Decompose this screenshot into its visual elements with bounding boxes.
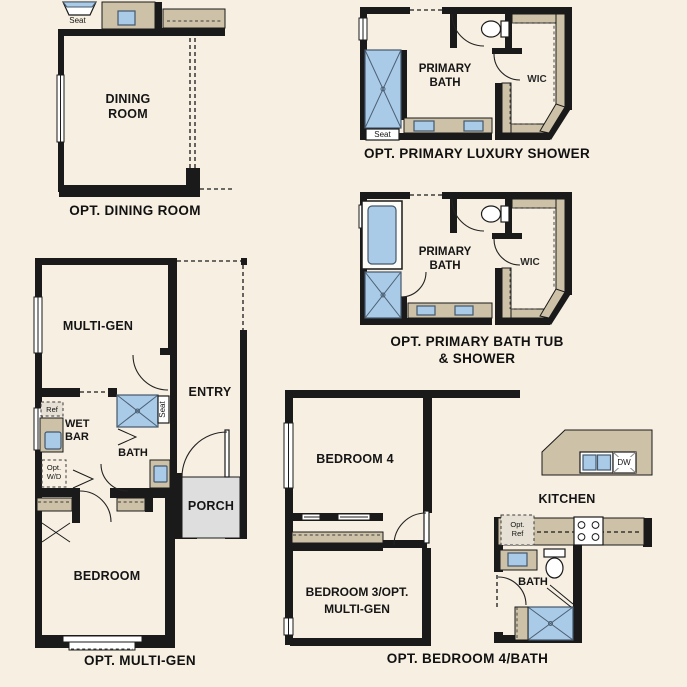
counter — [163, 9, 225, 28]
plan-opt-bedroom4-bath: BEDROOM 4 KITCHEN DW Opt. Ref BATH BEDRO… — [280, 385, 665, 680]
opt-ref-label: Opt. Ref — [501, 520, 534, 538]
entry-label: ENTRY — [180, 385, 240, 400]
window-icon — [118, 11, 135, 25]
vanity-sinks — [404, 118, 492, 133]
shower-icon — [117, 395, 158, 427]
window-seat-icon — [63, 2, 96, 15]
window-icon — [63, 636, 142, 650]
floor-plan-sheet: Seat DINING ROOM OPT. DINING ROOM — [0, 0, 687, 687]
plan-opt-multi-gen: MULTI-GEN ENTRY Ref WET BAR Opt. W/D Sea… — [25, 250, 255, 680]
vanity-sinks — [408, 303, 492, 318]
stove-icon — [574, 517, 603, 545]
closet-shelves — [37, 498, 145, 511]
dining-room-label: DINING ROOM — [78, 92, 178, 123]
primary-bath-label: PRIMARY BATH — [405, 245, 485, 273]
linen-shelf — [515, 607, 528, 640]
wic-label: WIC — [517, 74, 557, 86]
plan-opt-primary-luxury-shower: Seat PRIMARY BATH WIC OPT. PRIMARY LUXUR… — [352, 0, 602, 172]
bath-label: BATH — [113, 447, 153, 460]
tub-icon — [362, 201, 402, 269]
seat-label: Seat — [158, 396, 169, 423]
closet-shelves — [292, 532, 383, 543]
wic-label: WIC — [510, 257, 550, 269]
wet-bar-label: WET BAR — [65, 418, 110, 445]
bifold-door — [42, 523, 70, 542]
plan-caption: OPT. PRIMARY LUXURY SHOWER — [352, 146, 602, 163]
plan-caption: OPT. PRIMARY BATH TUB & SHOWER — [352, 334, 602, 368]
ref-label: Ref — [41, 405, 63, 414]
seat-label: Seat — [366, 130, 399, 140]
shower-icon — [365, 272, 401, 318]
primary-bath-label: PRIMARY BATH — [405, 62, 485, 90]
plan-caption: OPT. MULTI-GEN — [25, 653, 255, 670]
bath-sink — [150, 460, 170, 488]
bedroom4-label: BEDROOM 4 — [290, 452, 420, 467]
plan-opt-primary-bath-tub-shower: PRIMARY BATH WIC OPT. PRIMARY BATH TUB &… — [352, 188, 602, 373]
dw-label: DW — [613, 458, 635, 468]
toilet-icon — [482, 206, 510, 222]
toilet-icon — [544, 549, 565, 578]
plan-caption: OPT. BEDROOM 4/BATH — [280, 651, 655, 668]
dashed-opening — [190, 38, 235, 189]
wet-bar-sink — [40, 418, 63, 452]
kitchen-label: KITCHEN — [527, 492, 607, 507]
bath-label: BATH — [513, 576, 553, 589]
kitchen-island — [542, 430, 652, 475]
multi-gen-label: MULTI-GEN — [38, 319, 158, 334]
shower-icon — [365, 50, 401, 128]
seat-label: Seat — [63, 16, 92, 26]
bifold-door — [118, 429, 136, 445]
shower-icon — [528, 607, 573, 640]
plan-opt-dining-room: Seat DINING ROOM OPT. DINING ROOM — [30, 0, 240, 225]
bedroom-label: BEDROOM — [57, 569, 157, 584]
window-icon — [359, 18, 367, 40]
bath-sink — [500, 550, 537, 570]
bedroom3-label: BEDROOM 3/OPT. MULTI-GEN — [292, 584, 422, 619]
bifold-door — [73, 470, 93, 488]
plan-caption: OPT. DINING ROOM — [30, 203, 240, 220]
opt-wd-label: Opt. W/D — [42, 463, 66, 481]
porch-label: PORCH — [181, 499, 241, 514]
toilet-icon — [482, 21, 510, 37]
window-icon — [57, 75, 64, 142]
